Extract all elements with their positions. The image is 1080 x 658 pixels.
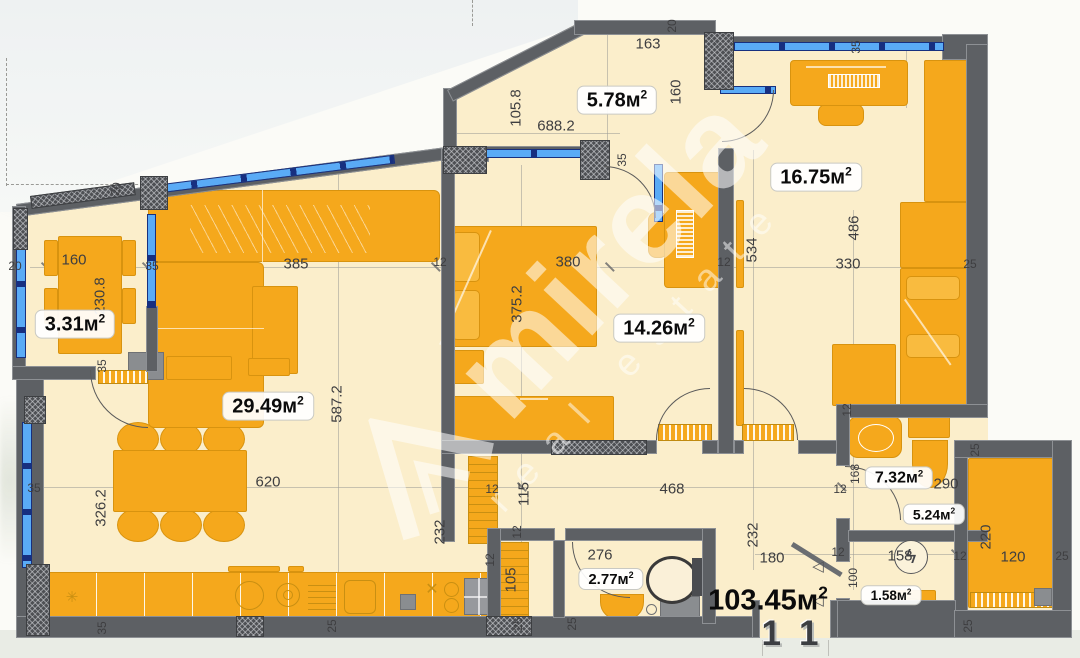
dining-chair <box>203 508 245 542</box>
dim-label: 25 <box>1055 549 1068 563</box>
dresser <box>832 344 896 406</box>
dim-label: 12 <box>510 525 524 538</box>
wardrobe <box>900 202 968 268</box>
desk-shelf-line <box>806 66 886 68</box>
cabinet <box>248 358 290 376</box>
wall-wc-west <box>487 528 501 624</box>
dim-label: 20 <box>665 19 679 32</box>
wall-top <box>574 20 716 35</box>
dim-label: 158 <box>887 548 912 565</box>
dimension-line <box>450 133 620 134</box>
keyboard-icon <box>828 74 880 88</box>
counter-item <box>228 566 280 572</box>
insulation-hatch <box>24 396 46 424</box>
room-label-hallway: 7.32м2 <box>865 466 933 489</box>
room-label-living: 29.49м2 <box>222 392 314 421</box>
sup-2: 2 <box>818 583 828 603</box>
desk-chair <box>818 104 864 126</box>
dim-label: 12 <box>840 403 854 416</box>
stove-line <box>478 578 480 615</box>
wardrobe-handle <box>520 398 548 400</box>
shaft-block <box>1034 588 1052 606</box>
wall-wc-top <box>565 528 714 541</box>
dining-table <box>113 450 247 512</box>
wall-right <box>966 44 988 418</box>
counter-item <box>288 566 304 572</box>
sup-2: 2 <box>641 88 648 102</box>
insulation-hatch <box>551 440 647 455</box>
dim-label: 486 <box>846 215 863 240</box>
wall-partition <box>146 306 158 372</box>
room-label-balcony-left: 3.31м2 <box>35 310 115 339</box>
keyboard-icon <box>676 210 694 258</box>
insulation-hatch <box>704 32 734 90</box>
wall <box>734 440 744 454</box>
wall-bottom-right <box>836 600 956 638</box>
dim-label: 160 <box>61 252 86 269</box>
dashed-reference-line <box>6 184 158 185</box>
insulation-hatch <box>236 616 264 637</box>
pillow <box>906 276 960 300</box>
sup-2: 2 <box>907 587 912 596</box>
pillow <box>452 290 480 340</box>
wall-bedroom-west <box>441 148 455 542</box>
apartment-number: 11 <box>762 614 839 654</box>
dashed-reference-line <box>6 58 7 186</box>
dim-label: 35 <box>849 40 863 53</box>
dim-label: 25 <box>961 619 975 632</box>
cooktop-circle-icon <box>235 581 264 610</box>
wall-wc-top <box>493 528 555 541</box>
dim-label: 688.2 <box>537 118 575 135</box>
dim-label: 12 <box>833 482 846 496</box>
wall-bath-top <box>836 404 988 418</box>
dim-label: 35 <box>95 359 109 372</box>
dim-label: 25 <box>968 443 982 456</box>
window <box>486 149 584 158</box>
drainer-icon <box>308 580 336 610</box>
dim-label: 25 <box>565 617 579 630</box>
room-label-bathroom: 5.24м2 <box>903 504 965 525</box>
dim-label: 12 <box>953 549 966 563</box>
bath-cabinet <box>908 416 950 438</box>
dim-label: 105 <box>503 567 520 592</box>
dining-chair <box>117 508 159 542</box>
dashed-reference-line <box>472 0 473 26</box>
kitchen-star-icon: ✳ <box>66 588 79 606</box>
sup-2: 2 <box>629 570 634 580</box>
dim-label: 35 <box>95 621 109 634</box>
shelf-strip <box>736 330 744 426</box>
dim-label: 276 <box>587 547 612 564</box>
dim-label: 25 <box>963 257 976 271</box>
floor-plan-canvas: ✳ ✕ ϟ <box>0 0 1080 658</box>
dim-label: 326.2 <box>93 489 110 527</box>
window <box>22 422 32 568</box>
window <box>734 42 944 51</box>
dim-label: 12 <box>831 545 844 559</box>
room-label-wc: 2.77м2 <box>578 568 643 590</box>
wardrobe <box>924 60 968 202</box>
dim-label: 100 <box>846 568 860 588</box>
dim-label: 35 <box>615 153 629 166</box>
wall-shaft-west <box>954 440 968 638</box>
balcony-chair <box>44 240 58 276</box>
wall-mid-vertical <box>718 148 734 454</box>
sup-2: 2 <box>688 316 695 330</box>
desk <box>664 172 726 288</box>
pillow <box>452 232 480 282</box>
insulation-hatch <box>443 146 487 174</box>
window <box>16 240 26 358</box>
dim-label: 12 <box>485 482 498 496</box>
dim-label: 12 <box>433 255 446 269</box>
sup-2: 2 <box>99 312 106 326</box>
dim-label: 330 <box>835 256 860 273</box>
wall-bottom <box>16 616 760 638</box>
burner-circle-icon <box>444 598 459 613</box>
sup-2: 2 <box>918 468 923 479</box>
dim-label: 587.2 <box>329 385 346 423</box>
nightstand <box>450 350 484 384</box>
room-label-balcony-top: 5.78м2 <box>577 86 657 115</box>
burner-cross-icon: ✕ <box>425 579 438 599</box>
dim-label: 120 <box>1000 549 1025 566</box>
dim-label: 12 <box>483 553 497 566</box>
wardrobe <box>452 396 614 442</box>
wall-balcony-bottom <box>12 366 96 380</box>
dim-label: 12 <box>717 255 730 269</box>
sup-2: 2 <box>950 506 955 516</box>
dim-label: 232 <box>432 519 449 544</box>
dim-label: 160 <box>668 79 685 104</box>
dim-label: 163 <box>635 36 660 53</box>
wall <box>702 440 718 454</box>
dining-chair <box>160 508 202 542</box>
insulation-hatch <box>26 564 50 636</box>
spiral-hob-icon <box>283 590 293 600</box>
dim-label: 20 <box>8 259 21 273</box>
cabinet <box>166 356 232 380</box>
dim-label: 25 <box>511 617 525 630</box>
dim-label: 380 <box>555 254 580 271</box>
wall-shaft-right <box>1052 440 1072 638</box>
dim-label: 232 <box>745 522 762 547</box>
room-label-storage: 1.58м2 <box>861 585 922 605</box>
dim-label: 180 <box>759 550 784 567</box>
total-area-label: 103.45м2 <box>708 583 828 618</box>
burner-circle-icon <box>444 582 459 597</box>
dimension-line <box>753 150 754 570</box>
wall <box>798 440 838 454</box>
toilet <box>646 556 698 604</box>
dim-label: 25 <box>325 619 339 632</box>
sofa-blanket-sketch <box>190 205 370 253</box>
dim-label: 168 <box>848 464 862 484</box>
insulation-hatch <box>13 208 28 250</box>
dim-label: 105.8 <box>508 89 525 127</box>
balcony-chair <box>122 240 136 276</box>
sup-2: 2 <box>297 394 304 408</box>
dim-label: 115 <box>516 482 533 506</box>
door-mark-icon: ◁ <box>812 557 824 575</box>
room-label-bedroom: 14.26м2 <box>613 314 705 343</box>
dim-label: 35 <box>145 259 158 273</box>
dim-label: 290 <box>933 476 958 493</box>
appliance <box>400 594 416 610</box>
dim-label: 20 <box>108 181 124 197</box>
dim-label: 35 <box>27 481 40 495</box>
sofa-cushion-line <box>148 328 264 329</box>
dim-label: 385 <box>283 256 308 273</box>
dim-label: 468 <box>659 481 684 498</box>
dim-label: 375.2 <box>509 285 526 323</box>
bath-sink-basin <box>858 424 894 452</box>
kitchen-sink-icon <box>344 580 376 614</box>
room-label-bedroom2: 16.75м2 <box>770 163 862 192</box>
pillow <box>906 334 960 358</box>
insulation-hatch <box>140 176 168 210</box>
dim-label: 220 <box>978 524 995 549</box>
wall-wc-divider <box>553 540 565 618</box>
balcony-chair <box>122 288 136 324</box>
sofa-cushion-line <box>262 190 263 262</box>
dim-label: 620 <box>255 474 280 491</box>
drain-icon <box>646 604 657 615</box>
sup-2: 2 <box>845 165 852 179</box>
dim-label: 534 <box>744 237 761 262</box>
insulation-hatch <box>486 616 532 636</box>
